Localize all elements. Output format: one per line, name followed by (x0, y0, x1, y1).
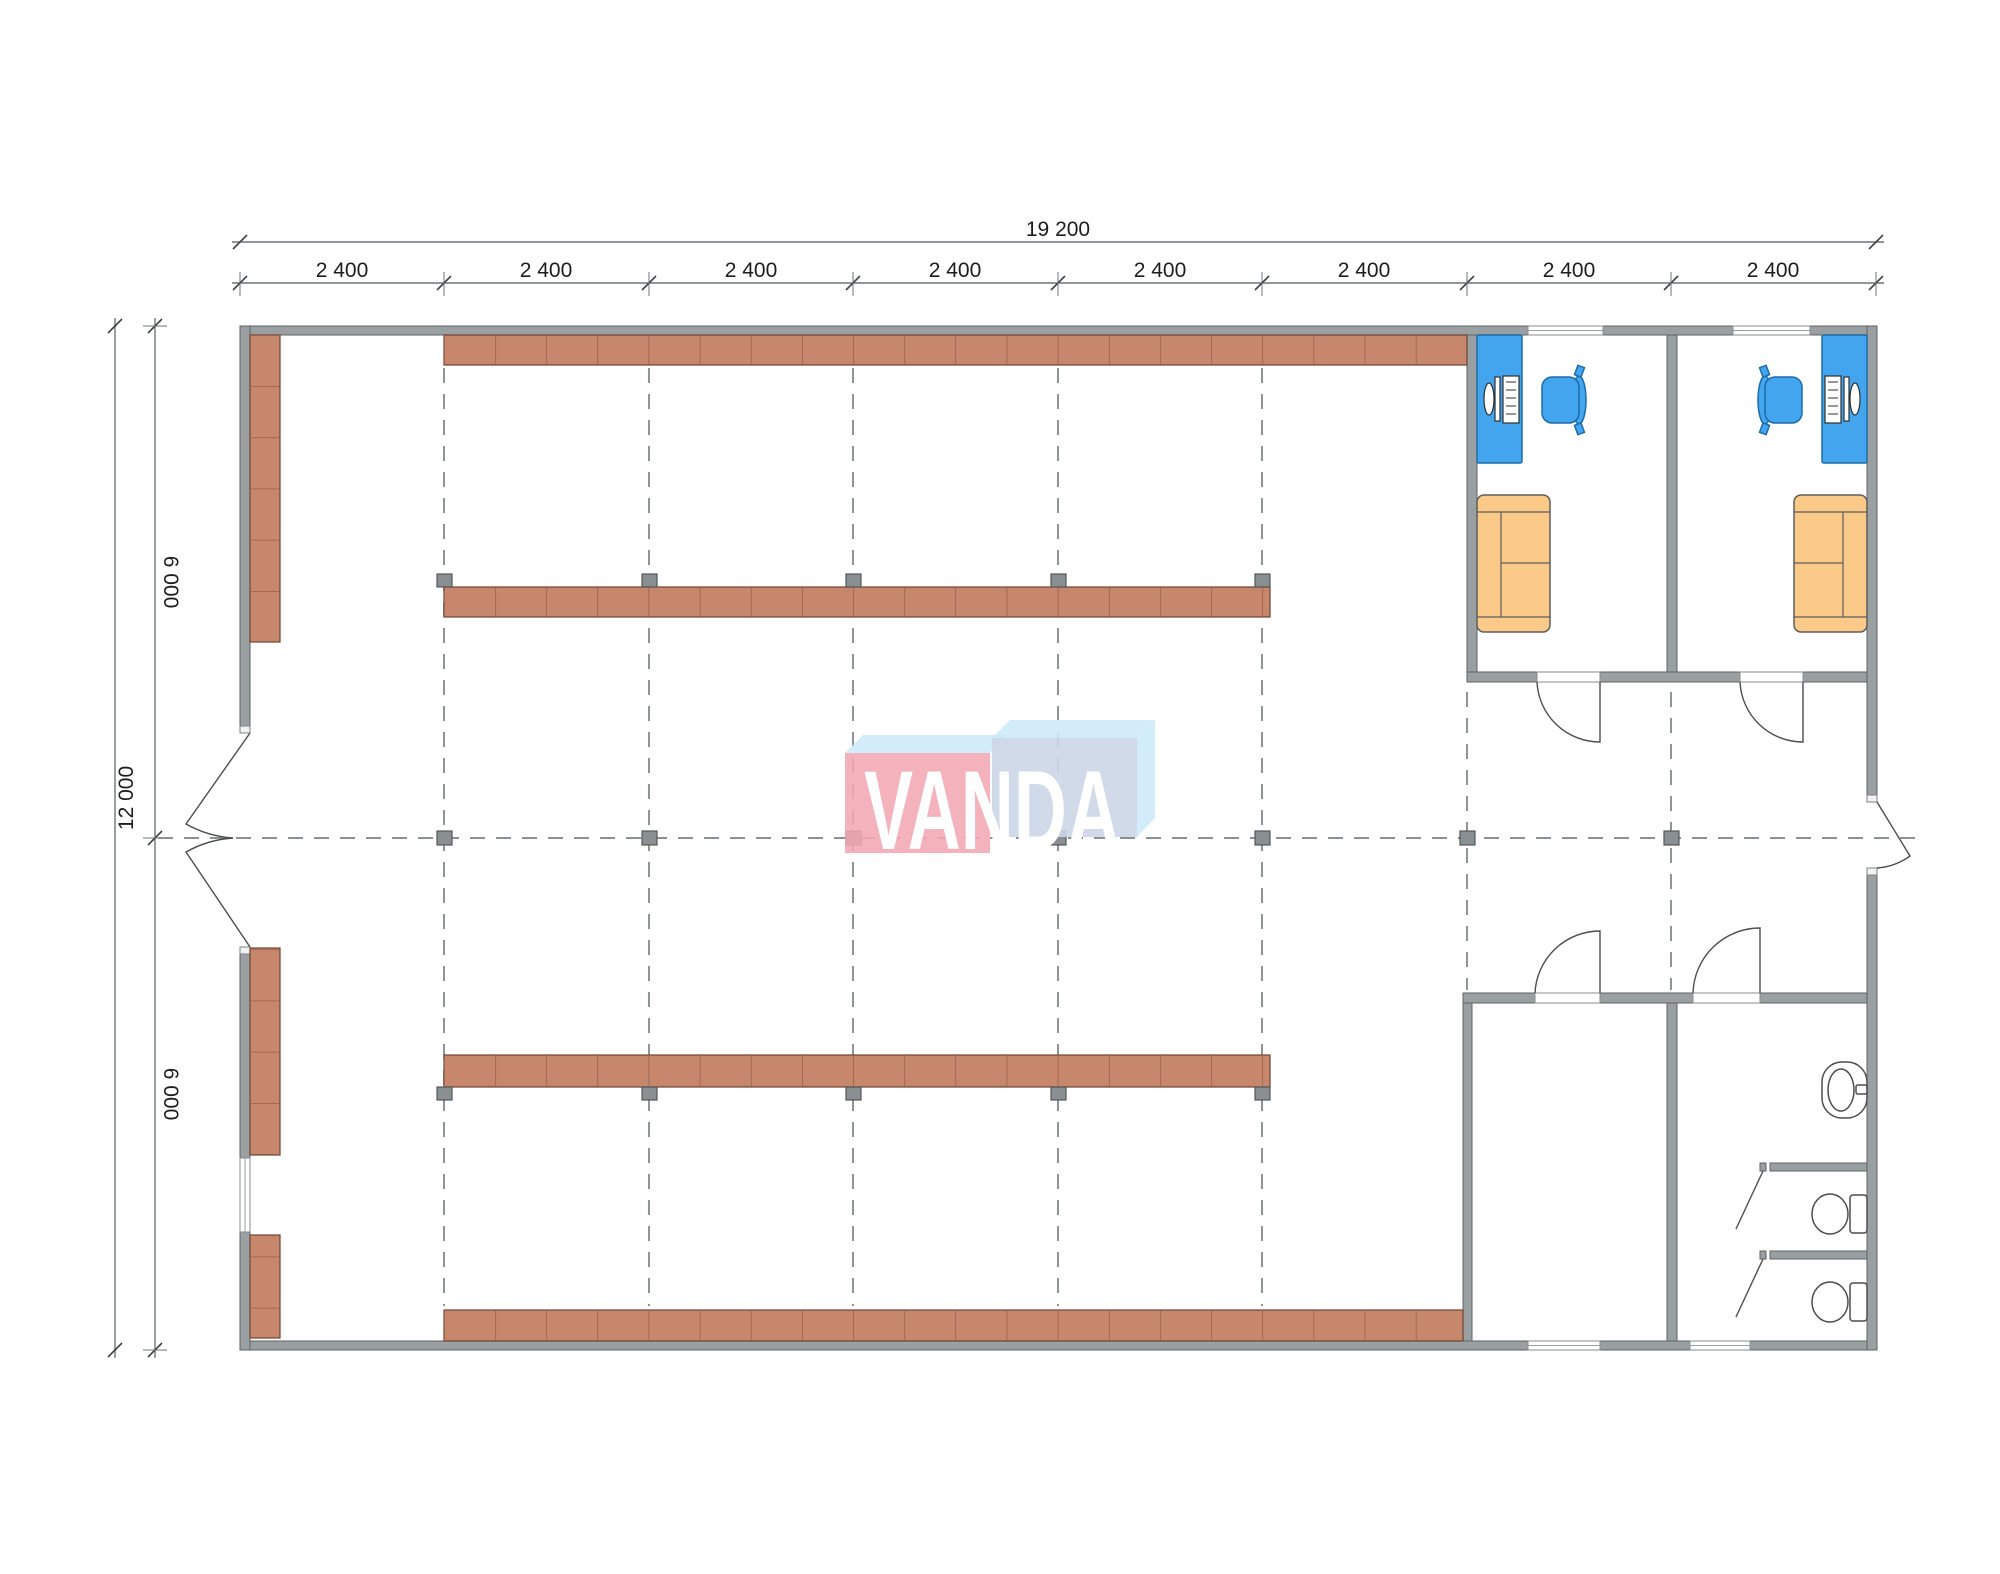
overall-width-label: 19 200 (1026, 218, 1090, 241)
backroom-left-wall (1463, 1003, 1472, 1341)
sink-icon (1822, 1062, 1867, 1118)
logo-text: VANDA (864, 748, 1120, 873)
segment-width-label: 2 400 (1543, 259, 1596, 282)
office-door (1537, 682, 1600, 742)
door-threshold (1693, 993, 1760, 1003)
right-exit-door (1877, 802, 1910, 868)
segment-width-label: 2 400 (1338, 259, 1391, 282)
shelf-row-middle-upper (444, 587, 1270, 617)
vanda-logo: VANDA (845, 720, 1155, 873)
segment-width-label: 2 400 (725, 259, 778, 282)
toilet-icon (1812, 1282, 1867, 1322)
overall-height-label: 12 000 (115, 766, 138, 830)
wc-stall-post (1760, 1251, 1766, 1259)
office-left (1477, 335, 1586, 632)
door-threshold (1535, 993, 1600, 1003)
wc-stall-wall (1770, 1163, 1867, 1171)
segment-height-label: 6 000 (159, 556, 182, 609)
backroom-front-wall (1600, 993, 1693, 1003)
door-jamb (1867, 868, 1877, 875)
wc-stall-door (1736, 1259, 1763, 1317)
right-wall-lower (1867, 872, 1877, 1350)
backroom-divider-wall (1667, 1003, 1677, 1341)
segment-width-label: 2 400 (1747, 259, 1800, 282)
office-front-wall (1467, 672, 1537, 682)
backroom-front-wall (1760, 993, 1867, 1003)
segment-height-label: 6 000 (159, 1068, 182, 1121)
segment-width-label: 2 400 (316, 259, 369, 282)
wc-stall-post (1760, 1163, 1766, 1171)
shelf-row-bottom-wall (444, 1310, 1463, 1341)
bathroom (1812, 1062, 1867, 1322)
backroom-door (1535, 931, 1600, 993)
segment-width-label: 2 400 (1134, 259, 1187, 282)
sofa (1794, 495, 1867, 632)
door-jamb (240, 726, 250, 733)
floor-plan-canvas: 19 200 2 400 2 400 2 400 2 400 2 400 2 4… (0, 0, 2000, 1574)
left-wall-middle (240, 947, 250, 1158)
sofa (1477, 495, 1550, 632)
toilet-icon (1812, 1194, 1867, 1234)
door-threshold (1537, 672, 1600, 682)
shelf-row-top-wall (444, 335, 1467, 365)
office-chair (1542, 365, 1586, 434)
office-right (1758, 335, 1867, 632)
office-chair (1758, 365, 1802, 434)
office-door (1740, 682, 1803, 742)
shelf-row-middle-lower (444, 1055, 1270, 1087)
shelf-strip-left-middle (250, 948, 280, 1155)
right-wall-upper (1867, 326, 1877, 802)
segment-width-label: 2 400 (520, 259, 573, 282)
backroom-door (1693, 928, 1760, 993)
top-wall (240, 326, 1877, 335)
backroom-front-wall (1463, 993, 1535, 1003)
office-front-wall (1600, 672, 1740, 682)
logo-side-face (1137, 720, 1155, 837)
logo-top-face-right (992, 720, 1155, 738)
door-jamb (240, 947, 250, 954)
left-wall-lower (240, 1232, 250, 1350)
shelf-strip-left-lower (250, 1235, 280, 1338)
office-divider-wall (1667, 335, 1677, 682)
shelf-strip-left-upper (250, 335, 280, 642)
entrance-double-door (186, 733, 250, 947)
office-front-wall (1803, 672, 1867, 682)
left-wall-upper (240, 326, 250, 733)
door-threshold (1740, 672, 1803, 682)
office-left-wall (1467, 335, 1477, 682)
bottom-wall (240, 1341, 1877, 1350)
wc-stall-wall (1770, 1251, 1867, 1259)
floor-plan-drawing: 19 200 2 400 2 400 2 400 2 400 2 400 2 4… (0, 0, 2000, 1574)
wc-stall-door (1736, 1171, 1763, 1229)
door-jamb (1867, 795, 1877, 802)
segment-width-label: 2 400 (929, 259, 982, 282)
